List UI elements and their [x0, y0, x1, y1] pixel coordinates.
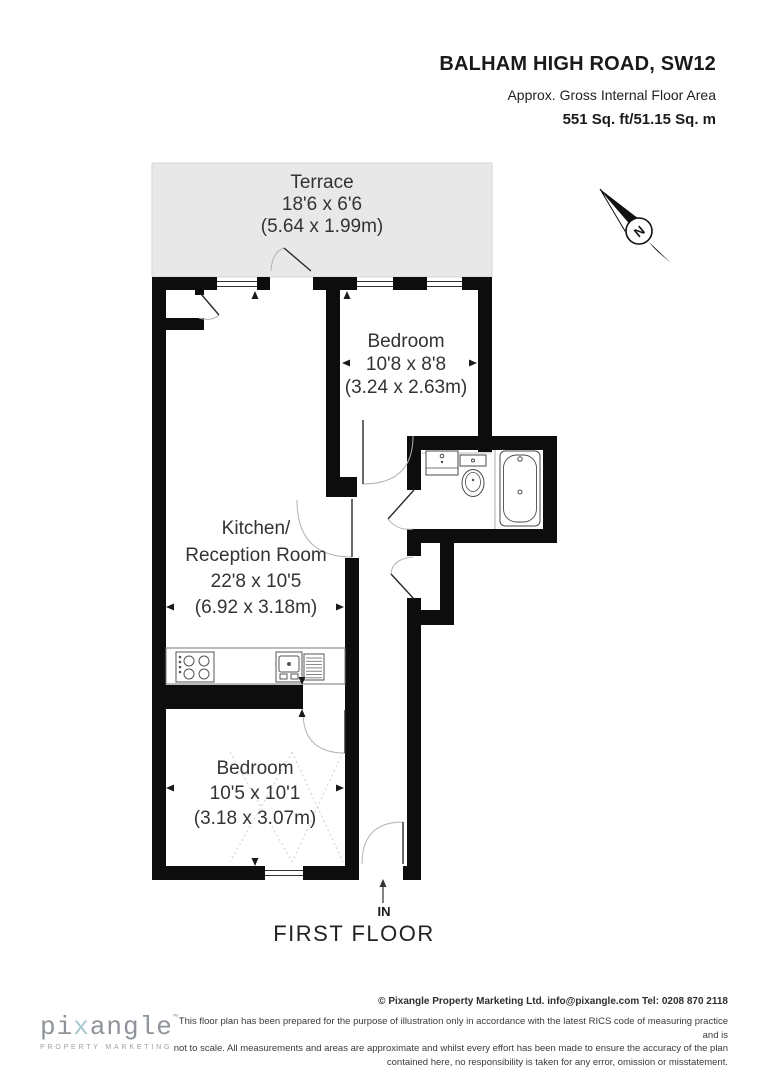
bedroom1-label: Bedroom 10'8 x 8'8 (3.24 x 2.63m) [345, 331, 468, 398]
footer-disclaimer: This floor plan has been prepared for th… [168, 1015, 728, 1069]
bedroom1-name: Bedroom [367, 331, 444, 352]
logo-text-x: x [73, 1012, 90, 1042]
bathroom-fixtures [422, 450, 540, 529]
kitchen-fixtures [166, 648, 345, 684]
dim-arrow-up [299, 709, 306, 717]
sink-icon [426, 451, 458, 475]
dim-arrow-left [342, 360, 350, 367]
in-label: IN [378, 904, 391, 919]
pixangle-logo: pixangle™ PROPERTY MARKETING [40, 1012, 178, 1051]
bedroom2-name: Bedroom [216, 758, 293, 779]
kitchen-dims-imperial: 22'8 x 10'5 [211, 571, 302, 592]
cupboard-door-icon [199, 294, 219, 319]
bedroom2-dims-metric: (3.18 x 3.07m) [194, 808, 317, 829]
dim-arrow-right [336, 604, 344, 611]
bathroom-door-icon [388, 490, 414, 529]
closet-door-icon [391, 557, 414, 599]
logo-wordmark: pixangle™ [40, 1012, 178, 1042]
disclaimer-line: contained here, no responsibility is tak… [168, 1056, 728, 1070]
terrace-dims-imperial: 18'6 x 6'6 [282, 194, 362, 215]
window-icon [357, 282, 393, 287]
logo-text-post: angle [90, 1012, 173, 1042]
bedroom2-label: Bedroom 10'5 x 10'1 (3.18 x 3.07m) [194, 758, 317, 829]
dim-arrow-right [336, 785, 344, 792]
kitchen-dims-metric: (6.92 x 3.18m) [195, 597, 318, 618]
dim-arrow-down [252, 858, 259, 866]
toilet-icon [460, 455, 486, 497]
kitchen-name-line1: Kitchen/ [222, 518, 291, 539]
window-icon [427, 282, 462, 287]
dim-arrow-left [166, 604, 174, 611]
dim-arrow-up [252, 291, 259, 299]
window-icon [217, 282, 257, 287]
entrance-marker: IN [378, 879, 391, 919]
dishwasher-icon [304, 654, 324, 680]
disclaimer-line: This floor plan has been prepared for th… [168, 1015, 728, 1042]
logo-text-pre: pi [40, 1012, 73, 1042]
bedroom2-dims-imperial: 10'5 x 10'1 [210, 783, 301, 804]
dim-arrow-left [166, 785, 174, 792]
bedroom2-door-icon [303, 710, 345, 753]
floor-title: FIRST FLOOR [273, 921, 435, 946]
hob-icon [176, 652, 214, 682]
disclaimer-line: not to scale. All measurements and areas… [168, 1042, 728, 1056]
bedroom1-dims-metric: (3.24 x 2.63m) [345, 377, 468, 398]
in-arrow-head-icon [380, 879, 387, 887]
bedroom1-door-icon [363, 420, 413, 484]
sink-unit-icon [276, 652, 302, 682]
kitchen-label: Kitchen/ Reception Room 22'8 x 10'5 (6.9… [185, 518, 327, 618]
compass-icon: N [600, 189, 671, 263]
window-icon [265, 871, 303, 876]
bathtub-icon [500, 451, 540, 526]
entrance-door-icon [362, 822, 403, 864]
logo-tagline: PROPERTY MARKETING [40, 1044, 178, 1051]
kitchen-name-line2: Reception Room [185, 545, 327, 566]
terrace-name: Terrace [290, 172, 353, 193]
footer-copyright: © Pixangle Property Marketing Ltd. info@… [378, 996, 728, 1007]
dim-arrow-up [344, 291, 351, 299]
terrace-dims-metric: (5.64 x 1.99m) [261, 216, 384, 237]
logo-trademark: ™ [173, 1014, 178, 1023]
bedroom1-dims-imperial: 10'8 x 8'8 [366, 354, 446, 375]
dim-arrow-right [469, 360, 477, 367]
floor-plan: N Terrace 18'6 x 6'6 (5.64 x 1.99m) Bedr… [0, 0, 764, 1080]
